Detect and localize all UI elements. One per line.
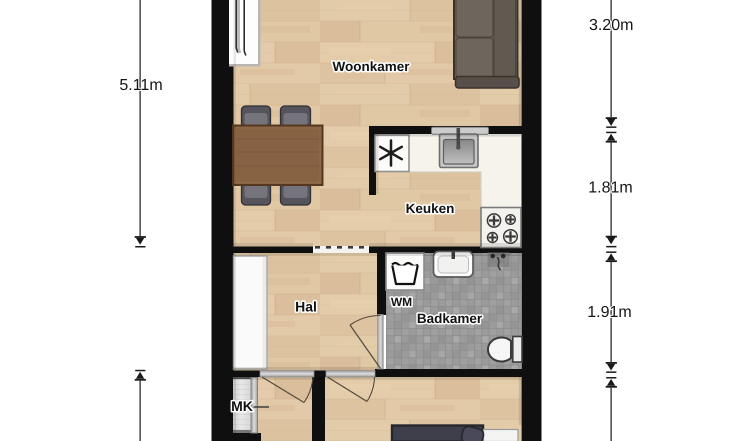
svg-text:MK: MK — [231, 398, 253, 414]
svg-text:1.81m: 1.81m — [588, 180, 632, 197]
svg-text:1.91m: 1.91m — [587, 304, 631, 321]
svg-text:Hal: Hal — [295, 299, 317, 315]
svg-text:WM: WM — [391, 295, 412, 309]
svg-text:Woonkamer: Woonkamer — [332, 59, 410, 74]
svg-text:Keuken: Keuken — [406, 201, 455, 216]
svg-text:Badkamer: Badkamer — [417, 311, 483, 326]
svg-text:3.20m: 3.20m — [589, 17, 633, 34]
svg-text:5.11m: 5.11m — [119, 77, 162, 94]
